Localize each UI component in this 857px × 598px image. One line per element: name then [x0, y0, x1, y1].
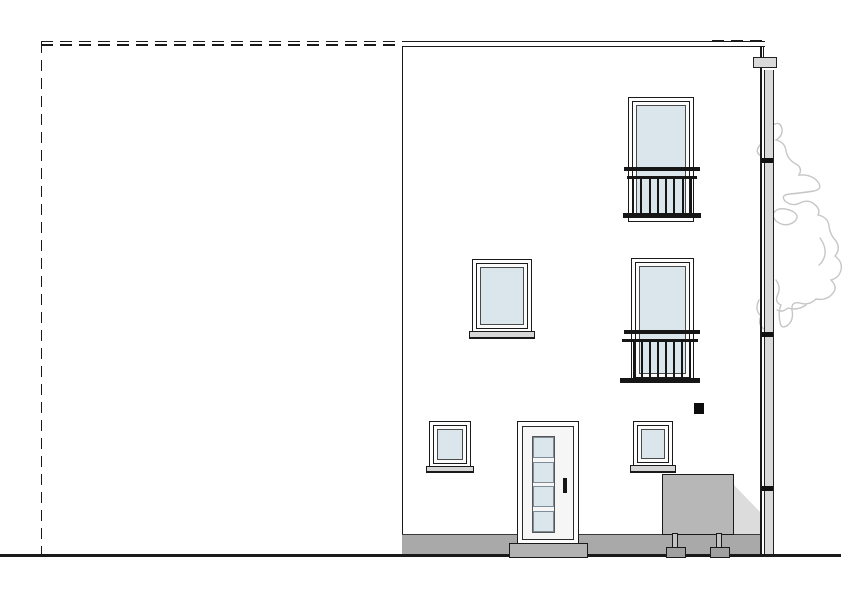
juliet-balcony-railing-middle: [633, 341, 691, 378]
juliet-balcony-railing-top: [632, 178, 692, 214]
window-glass: [480, 267, 524, 325]
downpipe-clamp: [762, 332, 773, 337]
neighbor-wall-dashed-line: [41, 42, 43, 556]
window-ground-right-sill: [630, 465, 676, 473]
downpipe-clamp: [762, 486, 773, 491]
window-ground-right: [633, 421, 673, 467]
window-middle-floor: [472, 259, 532, 333]
elevation-drawing: [0, 0, 857, 598]
utility-box-foot-left: [666, 547, 686, 558]
wall-lamp: [694, 403, 704, 414]
downpipe-clamp: [762, 158, 773, 163]
door-glass-pane: [533, 437, 554, 458]
wall-right-edge-line: [760, 46, 762, 554]
roof-parapet-top-line: [402, 41, 765, 42]
juliet-top-handrail: [624, 167, 700, 171]
utility-box: [662, 474, 734, 535]
rain-downpipe: [764, 70, 774, 554]
juliet-mid-handrail: [624, 330, 700, 334]
juliet-top-bottomrail: [623, 213, 701, 218]
neighbor-roof-dashed-line-upper: [41, 41, 402, 43]
neighbor-roof-dashed-line-lower: [41, 44, 402, 46]
door-glass-pane: [533, 486, 554, 507]
gutter-elbow: [753, 57, 777, 68]
window-middle-sill: [469, 331, 535, 339]
window-glass: [437, 429, 463, 460]
window-ground-left-sill: [426, 466, 474, 473]
door-glass-pane: [533, 511, 554, 532]
door-step: [509, 543, 588, 558]
juliet-mid-bottomrail: [620, 378, 700, 383]
window-glass: [641, 429, 665, 459]
entry-door: [517, 421, 579, 545]
door-handle: [563, 478, 567, 493]
door-glass-pane: [533, 462, 554, 483]
utility-box-foot-right: [710, 547, 730, 558]
roof-parapet-bottom-line: [402, 46, 765, 48]
door-glazing-column: [532, 436, 555, 533]
window-ground-left: [429, 421, 471, 468]
